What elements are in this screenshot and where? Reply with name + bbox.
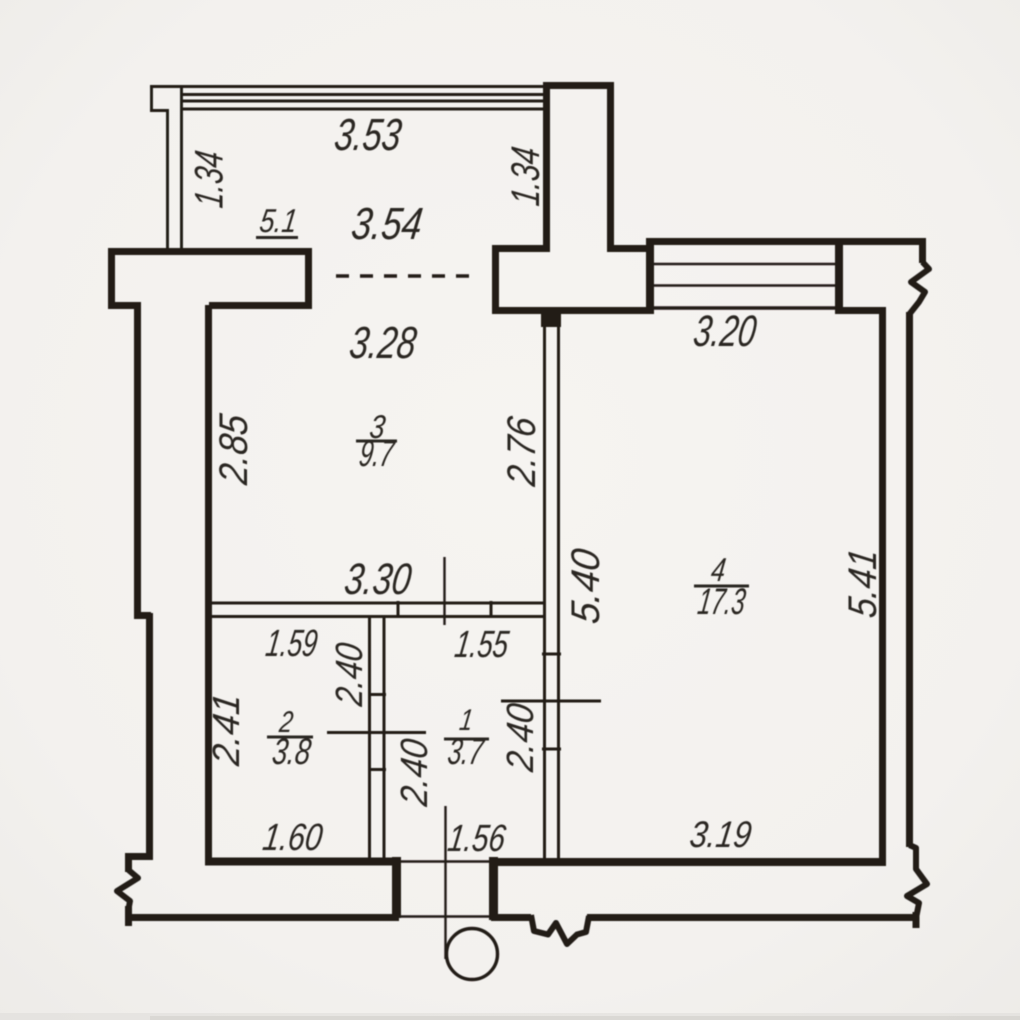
svg-text:17.3: 17.3 [695,580,748,622]
svg-text:5.40: 5.40 [563,545,608,626]
svg-text:2.41: 2.41 [205,691,248,769]
svg-text:3.28: 3.28 [347,317,420,368]
svg-text:3.8: 3.8 [270,730,314,772]
svg-text:2.76: 2.76 [499,413,544,489]
svg-text:1.34: 1.34 [187,148,232,210]
svg-text:1.56: 1.56 [445,817,509,860]
svg-text:9.7: 9.7 [357,432,398,474]
svg-text:2.40: 2.40 [499,701,542,775]
svg-text:3.7: 3.7 [445,730,487,772]
svg-text:3.53: 3.53 [332,109,405,160]
svg-text:1.55: 1.55 [452,623,512,666]
svg-text:2.85: 2.85 [211,411,256,488]
svg-text:3.20: 3.20 [691,307,760,356]
svg-text:3.54: 3.54 [349,198,426,249]
svg-text:5.1: 5.1 [257,203,299,240]
svg-text:3.30: 3.30 [342,555,415,604]
svg-text:2.40: 2.40 [393,736,436,809]
svg-text:2.40: 2.40 [328,640,371,709]
svg-text:1.59: 1.59 [263,622,320,665]
svg-text:5.41: 5.41 [840,546,885,620]
svg-text:3.19: 3.19 [687,813,754,855]
svg-text:1.34: 1.34 [503,144,548,208]
svg-text:1.60: 1.60 [260,816,325,859]
